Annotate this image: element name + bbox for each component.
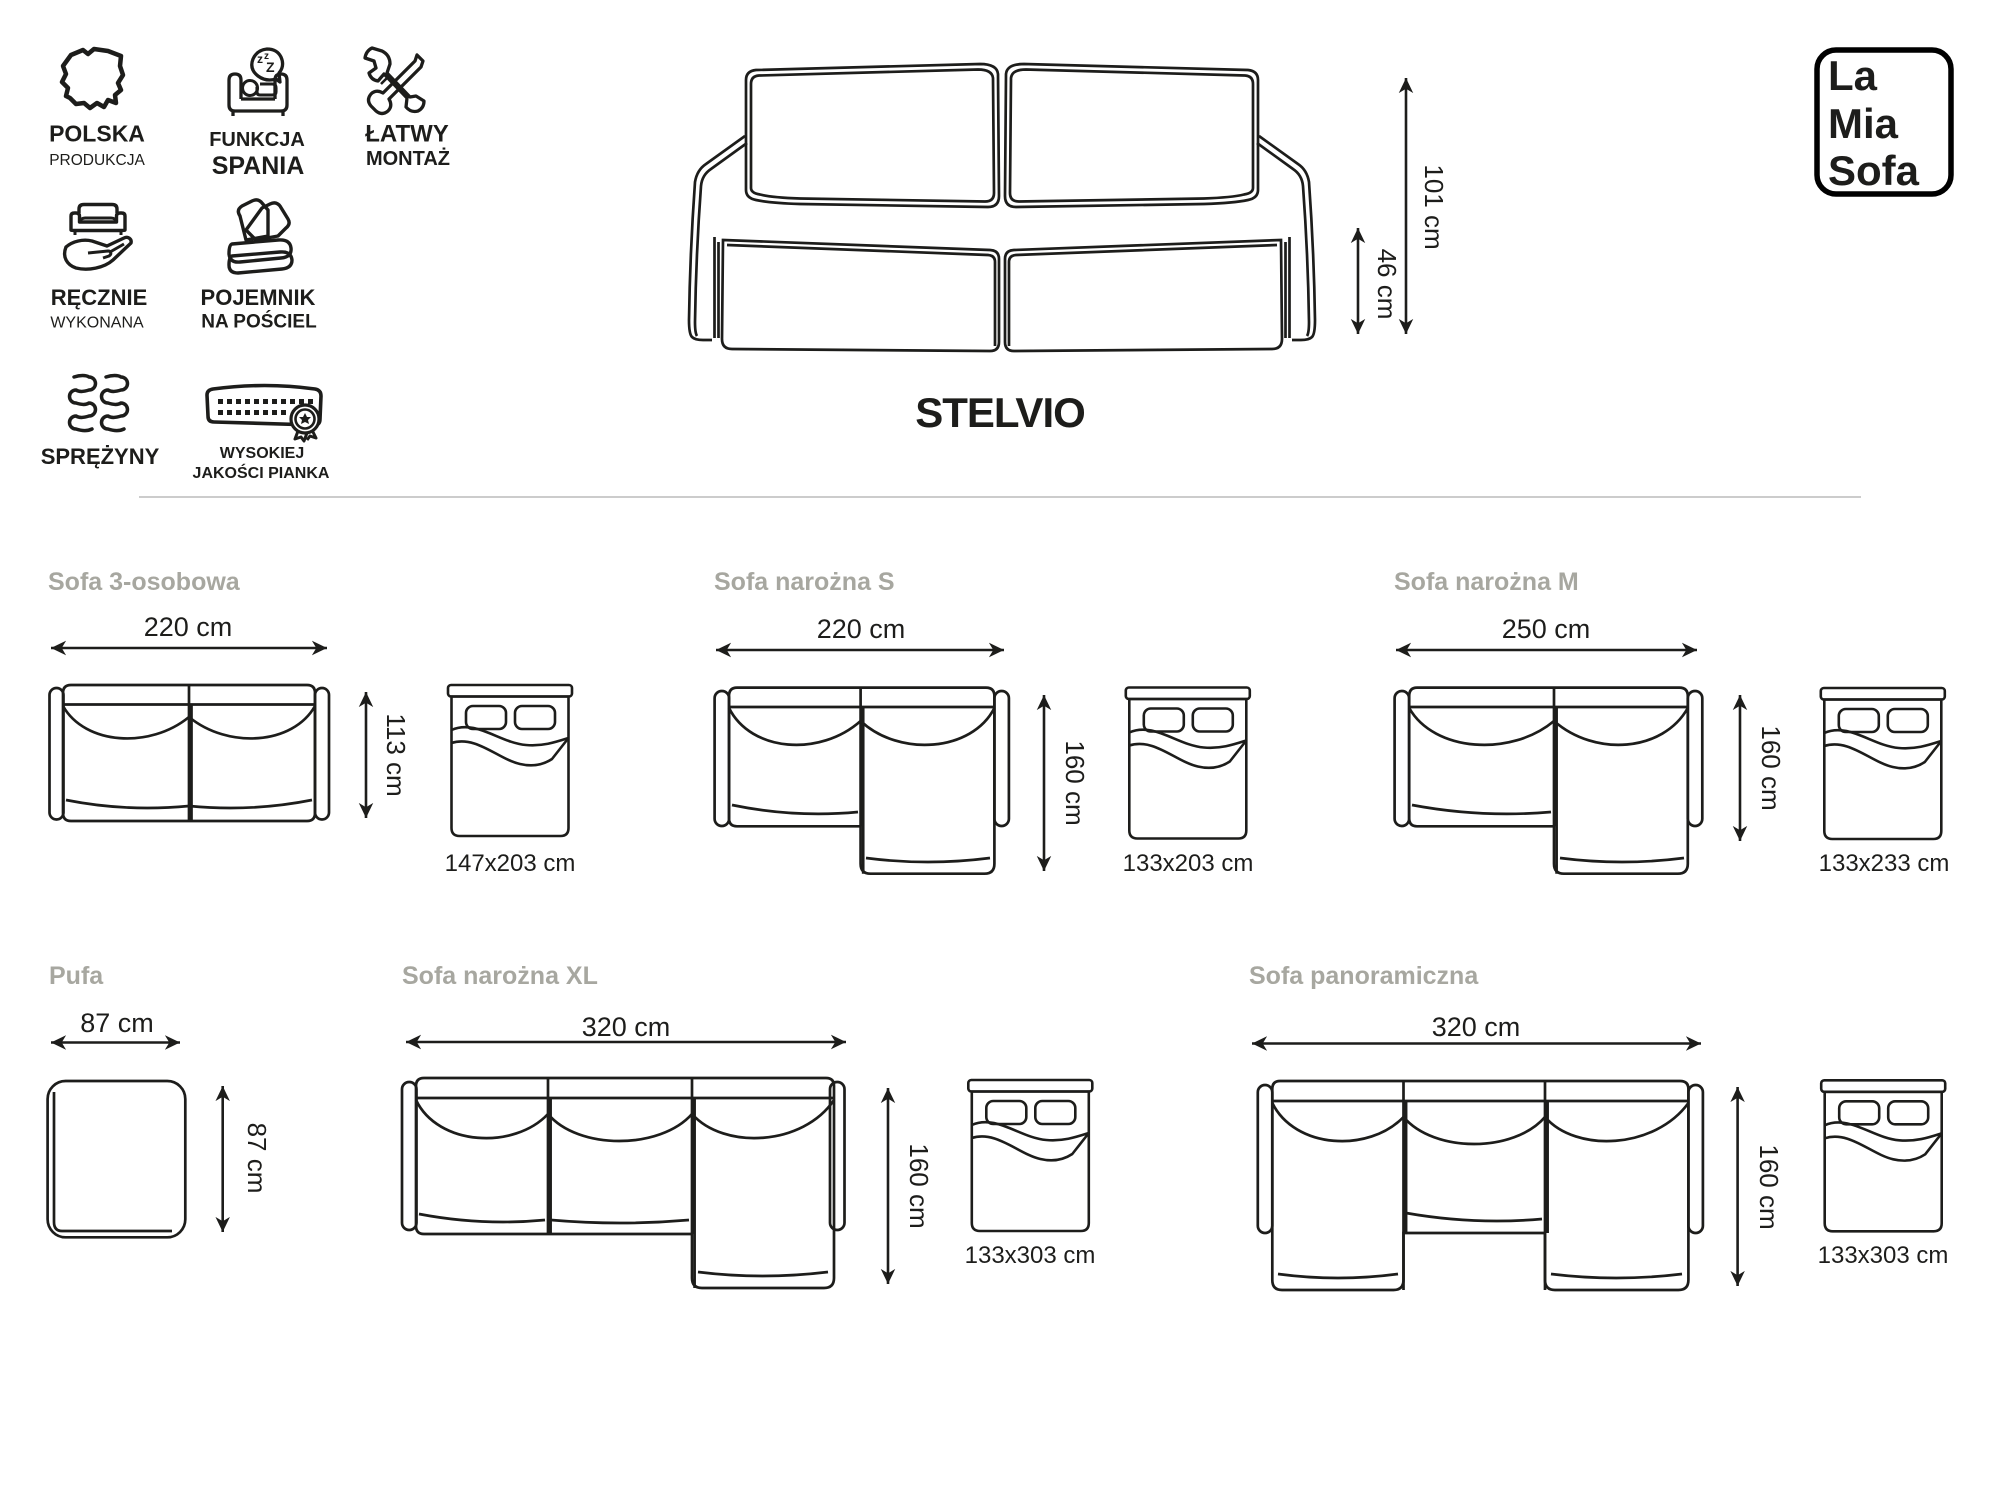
svg-text:La: La <box>1828 52 1878 99</box>
svg-text:133x303 cm: 133x303 cm <box>965 1242 1096 1269</box>
svg-text:147x203 cm: 147x203 cm <box>445 850 576 877</box>
svg-text:WYSOKIEJ: WYSOKIEJ <box>220 445 304 462</box>
svg-text:STELVIO: STELVIO <box>915 389 1085 436</box>
svg-text:250 cm: 250 cm <box>1502 614 1591 644</box>
svg-text:z: z <box>257 52 263 66</box>
svg-text:RĘCZNIE: RĘCZNIE <box>51 285 148 310</box>
svg-text:113 cm: 113 cm <box>381 713 411 796</box>
svg-text:133x303 cm: 133x303 cm <box>1818 1242 1949 1269</box>
svg-text:MONTAŻ: MONTAŻ <box>366 147 450 170</box>
svg-text:POJEMNIK: POJEMNIK <box>201 285 316 310</box>
svg-text:SPANIA: SPANIA <box>212 152 305 180</box>
svg-text:320 cm: 320 cm <box>582 1012 671 1042</box>
svg-text:160 cm: 160 cm <box>904 1143 934 1228</box>
svg-text:SPRĘŻYNY: SPRĘŻYNY <box>41 444 160 469</box>
svg-text:133x233 cm: 133x233 cm <box>1819 850 1950 877</box>
svg-text:PRODUKCJA: PRODUKCJA <box>49 152 145 169</box>
svg-text:WYKONANA: WYKONANA <box>50 315 144 332</box>
svg-text:Sofa narożna M: Sofa narożna M <box>1394 568 1579 596</box>
svg-text:220 cm: 220 cm <box>817 614 906 644</box>
svg-text:FUNKCJA: FUNKCJA <box>209 129 305 151</box>
svg-text:160 cm: 160 cm <box>1756 725 1786 810</box>
svg-text:Sofa panoramiczna: Sofa panoramiczna <box>1249 962 1479 990</box>
svg-text:ŁATWY: ŁATWY <box>365 121 449 148</box>
svg-text:Sofa: Sofa <box>1828 147 1920 194</box>
svg-text:101 cm: 101 cm <box>1419 164 1449 249</box>
svg-text:JAKOŚCI PIANKA: JAKOŚCI PIANKA <box>193 463 330 482</box>
svg-text:46 cm: 46 cm <box>1372 249 1402 320</box>
svg-text:87 cm: 87 cm <box>80 1008 154 1038</box>
svg-text:160 cm: 160 cm <box>1060 740 1090 825</box>
svg-text:Sofa narożna S: Sofa narożna S <box>714 568 895 596</box>
svg-text:POLSKA: POLSKA <box>49 121 145 147</box>
svg-text:133x203 cm: 133x203 cm <box>1123 850 1254 877</box>
svg-text:Sofa narożna XL: Sofa narożna XL <box>402 962 598 990</box>
svg-text:87 cm: 87 cm <box>242 1123 272 1194</box>
svg-text:Sofa 3-osobowa: Sofa 3-osobowa <box>48 568 241 596</box>
svg-text:Mia: Mia <box>1828 100 1899 147</box>
svg-text:Pufa: Pufa <box>49 962 104 990</box>
svg-text:Z: Z <box>266 59 275 75</box>
svg-text:160 cm: 160 cm <box>1754 1144 1784 1229</box>
svg-text:NA POŚCIEL: NA POŚCIEL <box>201 311 317 333</box>
svg-text:220 cm: 220 cm <box>144 612 233 642</box>
svg-text:320 cm: 320 cm <box>1432 1012 1521 1042</box>
